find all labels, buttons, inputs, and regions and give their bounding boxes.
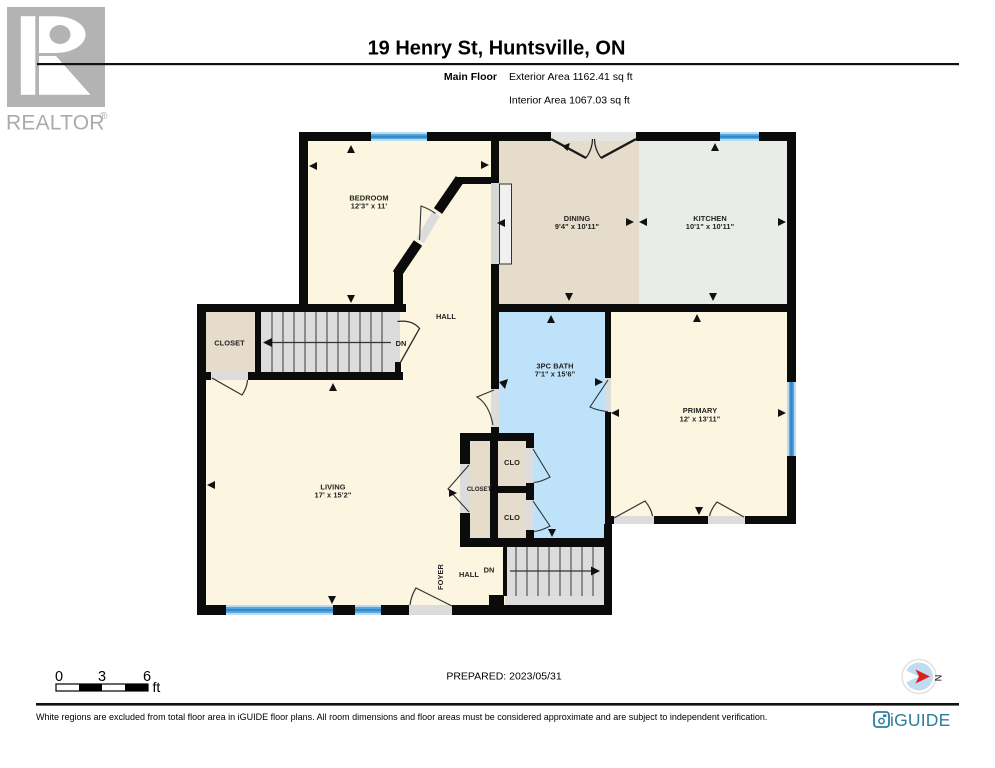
svg-text:Interior Area 1067.03 sq ft: Interior Area 1067.03 sq ft [509,95,630,107]
svg-text:White regions are excluded fro: White regions are excluded from total fl… [36,712,767,722]
svg-text:9'4" x 10'11": 9'4" x 10'11" [555,222,600,231]
svg-text:CLO: CLO [504,458,520,467]
svg-text:DN: DN [484,566,495,575]
svg-text:CLO: CLO [504,513,520,522]
svg-text:DN: DN [396,339,407,348]
svg-text:®: ® [100,111,108,122]
svg-text:0: 0 [55,669,63,685]
svg-text:CLOSET: CLOSET [467,487,492,493]
svg-text:7'1" x 15'6": 7'1" x 15'6" [535,370,576,379]
svg-text:REALTOR: REALTOR [6,112,105,135]
svg-text:3: 3 [98,669,106,685]
svg-text:17' x 15'2": 17' x 15'2" [315,491,352,500]
svg-text:Main Floor: Main Floor [444,71,497,83]
svg-text:19 Henry St, Huntsville, ON: 19 Henry St, Huntsville, ON [368,38,626,60]
svg-text:12' x 13'11": 12' x 13'11" [680,415,721,424]
svg-text:N: N [933,675,943,682]
svg-text:HALL: HALL [436,312,456,321]
svg-text:Exterior Area 1162.41 sq ft: Exterior Area 1162.41 sq ft [509,71,633,83]
svg-text:6: 6 [143,669,151,685]
svg-text:ft: ft [153,679,161,695]
svg-text:FOYER: FOYER [436,563,445,590]
svg-text:12'3" x 11': 12'3" x 11' [351,202,388,211]
svg-text:10'1" x 10'11": 10'1" x 10'11" [686,222,735,231]
svg-text:HALL: HALL [459,570,479,579]
svg-text:iGUIDE: iGUIDE [890,710,951,730]
svg-text:PREPARED: 2023/05/31: PREPARED: 2023/05/31 [446,671,562,683]
svg-text:CLOSET: CLOSET [214,339,245,348]
